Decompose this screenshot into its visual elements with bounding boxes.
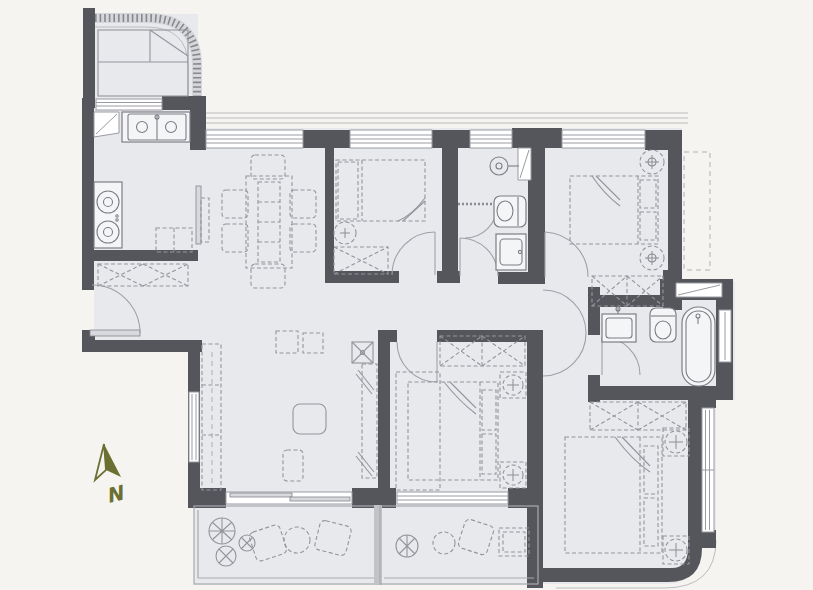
window-masterbath-north <box>676 283 722 297</box>
window-living-west <box>189 392 199 462</box>
window-kitchen-top <box>96 99 162 110</box>
sliding-door-living-balcony <box>226 492 352 504</box>
compass: N <box>95 444 128 508</box>
window-north-bedroom-tc <box>350 130 432 148</box>
kitchen-sink <box>122 112 190 142</box>
balcony-divider <box>374 505 382 585</box>
floor-plan-svg: N <box>0 0 813 590</box>
plant <box>209 518 235 544</box>
window-north-bath <box>470 130 512 148</box>
toilet <box>494 196 526 227</box>
window-kitchen-corner <box>94 112 119 137</box>
shower-glass-panel <box>518 148 531 180</box>
floor-plan-image: N <box>0 0 813 590</box>
compass-label: N <box>104 480 128 508</box>
toilet <box>650 308 676 342</box>
vanity-sink <box>496 234 526 270</box>
north-arrow-icon <box>95 444 121 480</box>
window-master-bay <box>702 408 714 532</box>
kitchen-stove <box>94 182 122 248</box>
bathtub <box>682 307 715 386</box>
ac-platform-dashed <box>684 152 710 270</box>
window-bedroom-bc-south <box>397 492 508 504</box>
window-north-bedroom-tr <box>562 130 645 148</box>
window-north-dining <box>206 130 303 148</box>
window-masterbath-east <box>719 310 731 362</box>
kitchen-sliding-door <box>196 186 201 244</box>
